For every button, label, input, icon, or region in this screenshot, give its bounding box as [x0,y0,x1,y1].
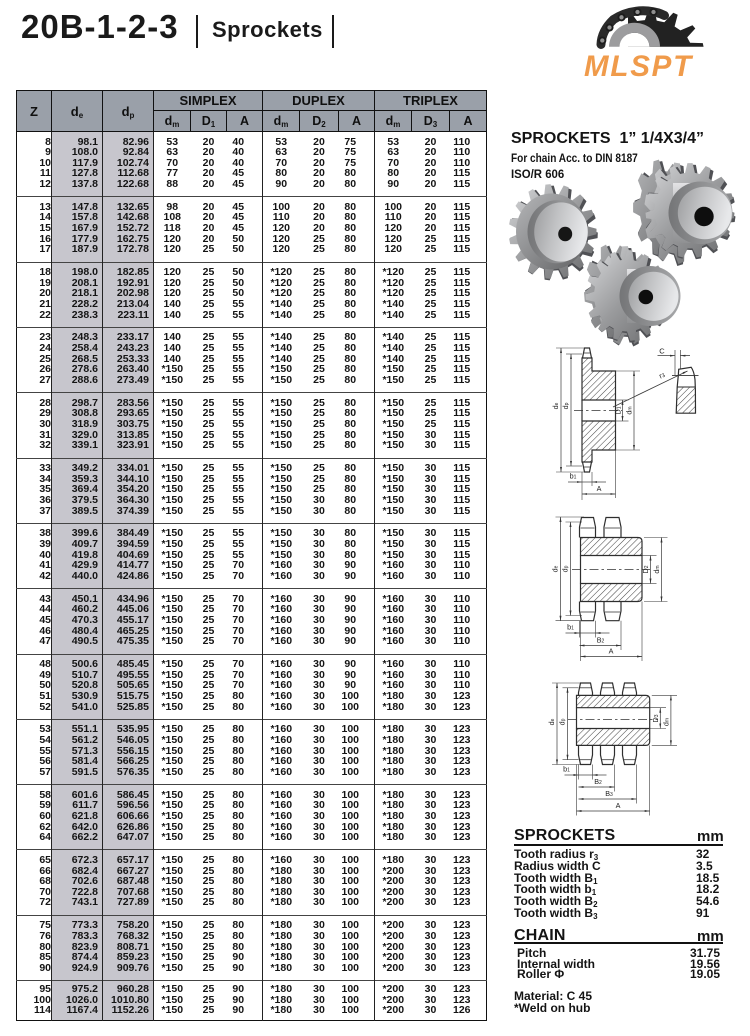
svg-text:A: A [616,801,621,810]
svg-text:D3: D3 [651,714,660,722]
svg-text:b1: b1 [563,765,570,774]
svg-text:b1: b1 [570,472,577,481]
svg-text:dm: dm [652,565,661,573]
svg-text:D1: D1 [614,406,623,414]
svg-text:B2: B2 [594,777,602,786]
svg-text:dm: dm [625,406,634,414]
svg-text:de: de [551,565,560,572]
svg-text:A: A [597,484,602,493]
svg-text:dm: dm [662,718,671,726]
svg-text:dp: dp [558,718,567,725]
svg-text:dp: dp [561,402,570,409]
svg-text:MLSPT: MLSPT [584,50,694,83]
svg-text:b1: b1 [567,623,574,632]
svg-text:B2: B2 [597,636,605,645]
svg-text:dp: dp [561,565,570,572]
svg-text:de: de [551,402,560,409]
svg-text:A: A [609,647,614,656]
svg-text:B3: B3 [605,789,613,798]
svg-text:r3: r3 [657,370,666,381]
svg-text:de: de [547,718,556,725]
svg-text:C: C [659,347,665,356]
